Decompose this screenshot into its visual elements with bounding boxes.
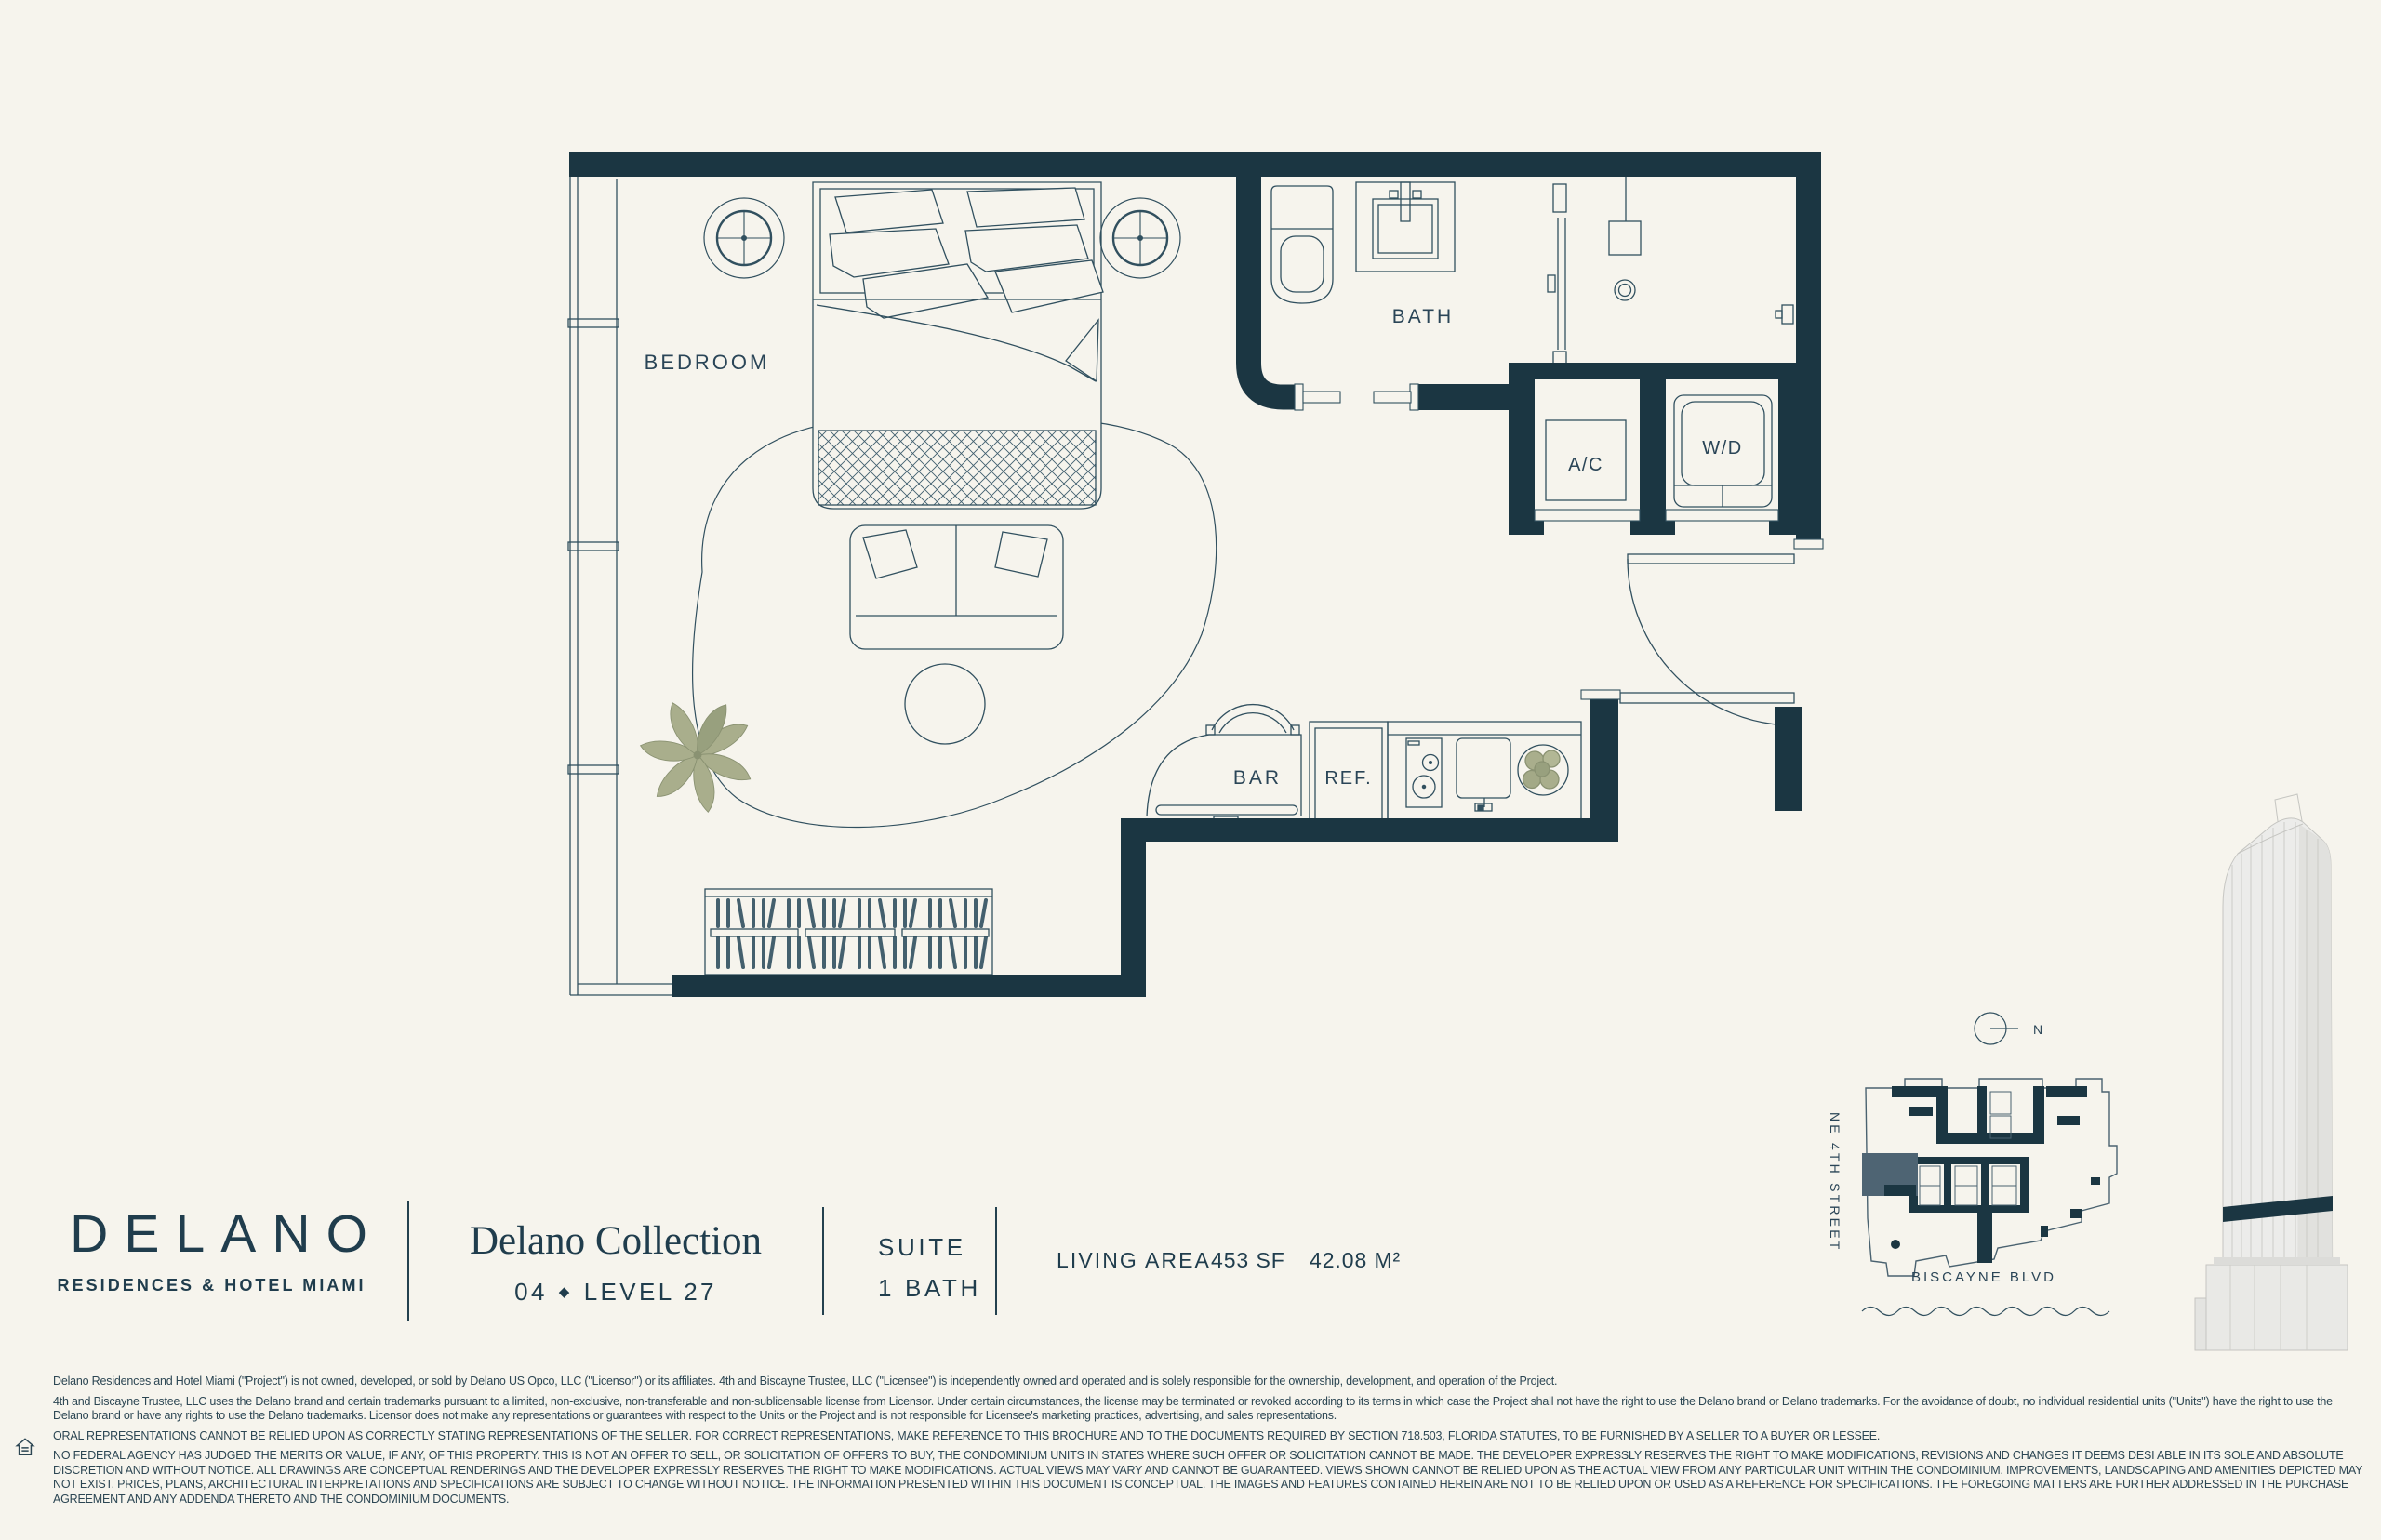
towel-hook-icon bbox=[1776, 305, 1793, 324]
sofa bbox=[850, 525, 1063, 649]
bath-fixtures bbox=[1271, 177, 1793, 378]
collection-title: Delano Collection bbox=[428, 1218, 804, 1264]
wall-caps bbox=[1295, 384, 1823, 699]
ref-label: REF. bbox=[1324, 768, 1372, 789]
tower-podium bbox=[2206, 1265, 2348, 1350]
walls bbox=[569, 152, 1821, 997]
toilet-icon bbox=[1271, 186, 1333, 303]
tower-rendering bbox=[2195, 794, 2348, 1350]
plant-icon bbox=[638, 699, 754, 814]
legal-paragraph-3: ORAL REPRESENTATIONS CANNOT BE RELIED UP… bbox=[53, 1429, 2365, 1444]
bed bbox=[813, 182, 1103, 509]
window-wall-left bbox=[568, 177, 705, 995]
suite-label: SUITE bbox=[878, 1233, 966, 1262]
floor-plan: BEDROOM BATH A/C W/D BAR REF. bbox=[568, 152, 1823, 997]
area-sf-value: 453 SF bbox=[1211, 1248, 1285, 1273]
brand-tagline: RESIDENCES & HOTEL MIAMI bbox=[54, 1276, 366, 1295]
key-plan: N bbox=[1828, 1013, 2117, 1316]
kitchen bbox=[1147, 705, 1581, 823]
bedroom-label: BEDROOM bbox=[645, 351, 770, 374]
vanity-sink-icon bbox=[1356, 182, 1455, 272]
level-label: LEVEL 27 bbox=[584, 1278, 717, 1306]
equal-housing-icon bbox=[15, 1437, 35, 1457]
bar-label: BAR bbox=[1233, 767, 1282, 789]
pillow bbox=[967, 188, 1084, 227]
bath-label: BATH bbox=[1392, 306, 1454, 327]
kitchen-sink-icon bbox=[1457, 738, 1510, 811]
keyplan-elevators bbox=[1920, 1092, 2016, 1205]
fruit-bowl-icon bbox=[1518, 745, 1568, 795]
shower-door-icon bbox=[1548, 184, 1566, 378]
legal-disclaimer: Delano Residences and Hotel Miami ("Proj… bbox=[53, 1374, 2365, 1512]
cooktop-icon bbox=[1406, 738, 1442, 807]
boulevard-label: BISCAYNE BLVD bbox=[1911, 1269, 2056, 1285]
drawings-canvas: BEDROOM BATH A/C W/D BAR REF. N bbox=[0, 0, 2381, 1540]
wd-label: W/D bbox=[1702, 438, 1742, 458]
brochure-page: BEDROOM BATH A/C W/D BAR REF. N bbox=[0, 0, 2381, 1540]
area-m2-value: 42.08 M² bbox=[1310, 1248, 1401, 1273]
compass-icon bbox=[1975, 1013, 2018, 1044]
balcony-glazing bbox=[705, 889, 992, 975]
unit-level-line: 04◆LEVEL 27 bbox=[428, 1278, 804, 1307]
legal-paragraph-2: 4th and Biscayne Trustee, LLC uses the D… bbox=[53, 1395, 2365, 1424]
divider bbox=[822, 1207, 824, 1315]
entry-door bbox=[1620, 554, 1794, 725]
bed-bench-hatch bbox=[818, 431, 1096, 505]
highlighted-unit-wall bbox=[1884, 1185, 1916, 1196]
round-table bbox=[905, 664, 985, 744]
living-area-label: LIVING AREA bbox=[1057, 1248, 1211, 1273]
legal-paragraph-1: Delano Residences and Hotel Miami ("Proj… bbox=[53, 1374, 2365, 1389]
street-label: NE 4TH STREET bbox=[1828, 1112, 1842, 1253]
brand-logo: DELANO bbox=[54, 1203, 366, 1265]
unit-number: 04 bbox=[514, 1278, 548, 1306]
divider bbox=[407, 1201, 409, 1321]
keyplan-cores bbox=[1891, 1086, 2100, 1263]
divider bbox=[995, 1207, 997, 1315]
bar-stools-icon bbox=[1206, 705, 1299, 735]
water-wave bbox=[1862, 1308, 2109, 1316]
shower-head-icon bbox=[1609, 177, 1641, 300]
bath-count-label: 1 BATH bbox=[878, 1274, 981, 1303]
north-label: N bbox=[2033, 1022, 2043, 1037]
legal-paragraph-4: NO FEDERAL AGENCY HAS JUDGED THE MERITS … bbox=[53, 1449, 2365, 1507]
diamond-separator-icon: ◆ bbox=[548, 1284, 584, 1300]
ac-label: A/C bbox=[1568, 455, 1603, 475]
